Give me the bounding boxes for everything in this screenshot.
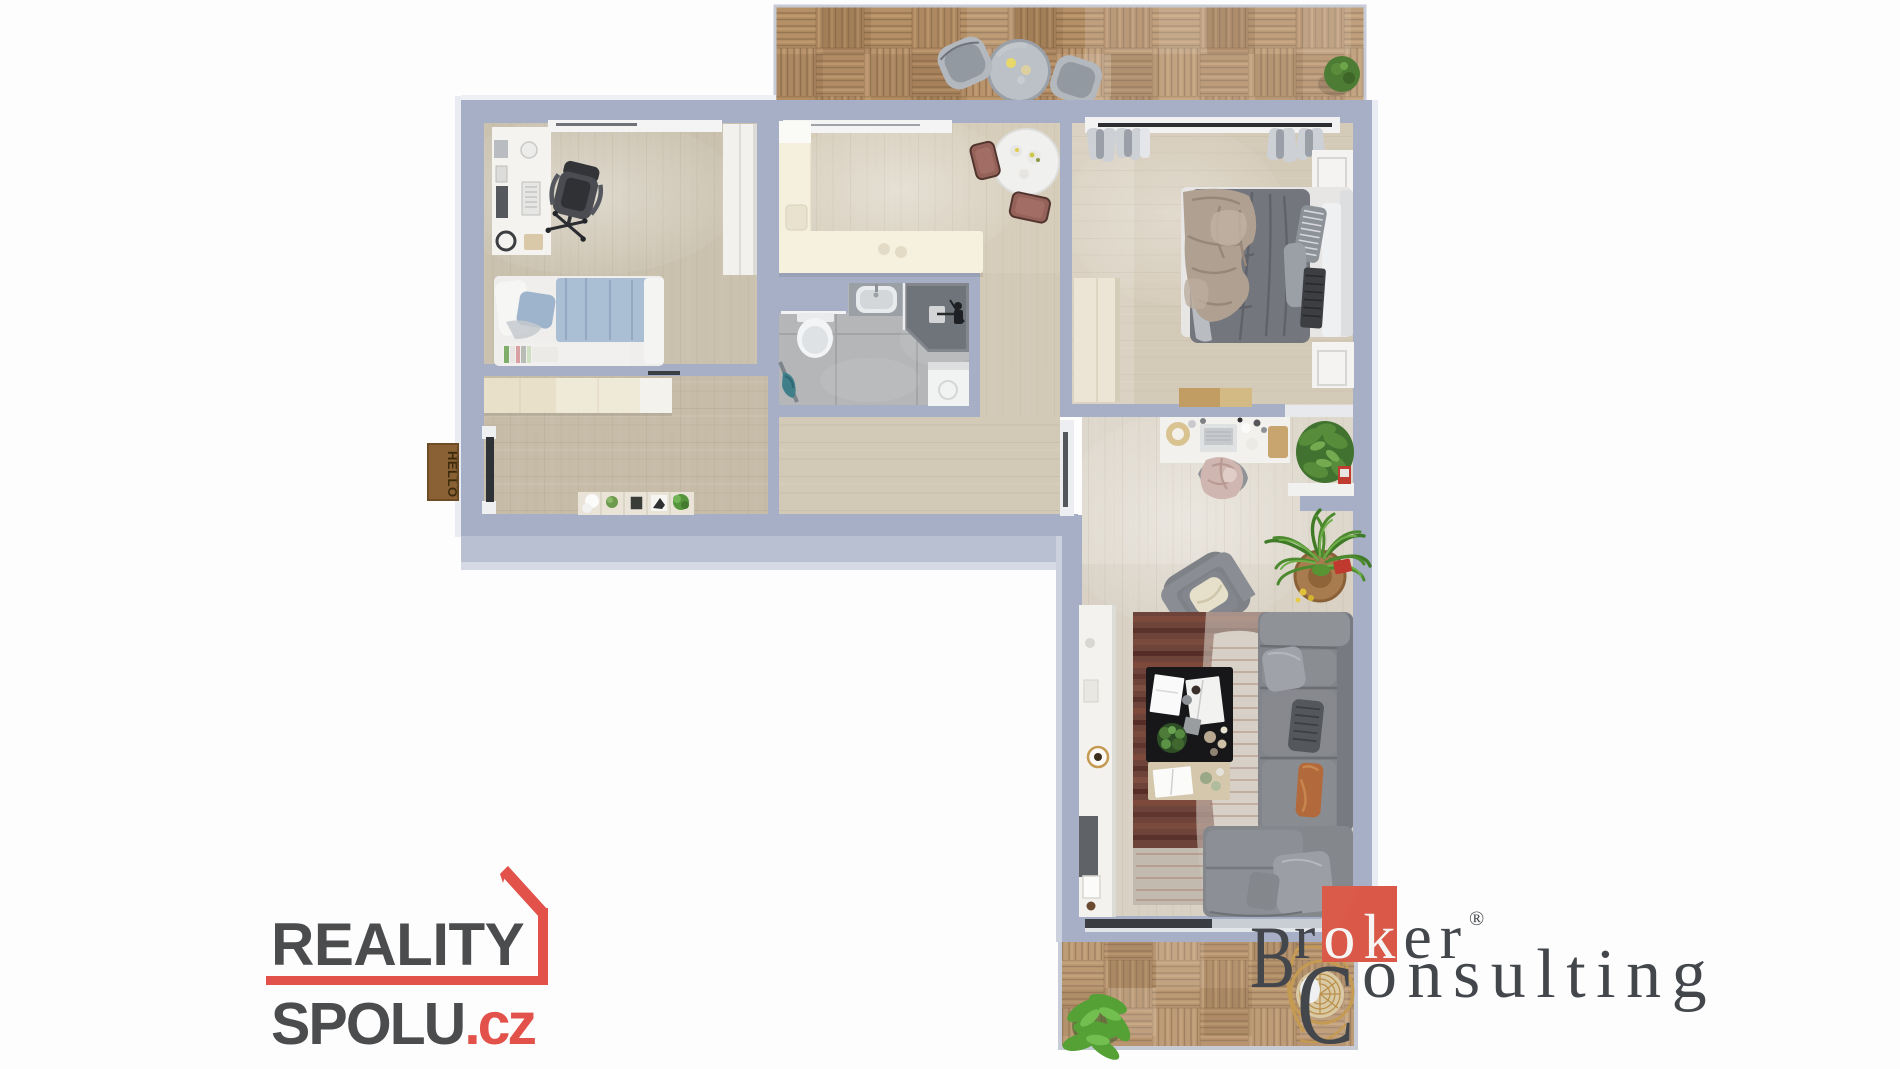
svg-text:C: C [1297, 941, 1354, 1069]
svg-text:REALITY: REALITY [271, 911, 525, 978]
svg-text:SPOLU.cz: SPOLU.cz [271, 991, 535, 1057]
svg-text:B: B [1250, 909, 1295, 1007]
svg-text:®: ® [1469, 908, 1484, 930]
svg-text:onsulting: onsulting [1362, 936, 1717, 1013]
svg-text:NICE TO SEE YOU: NICE TO SEE YOU [455, 456, 460, 495]
